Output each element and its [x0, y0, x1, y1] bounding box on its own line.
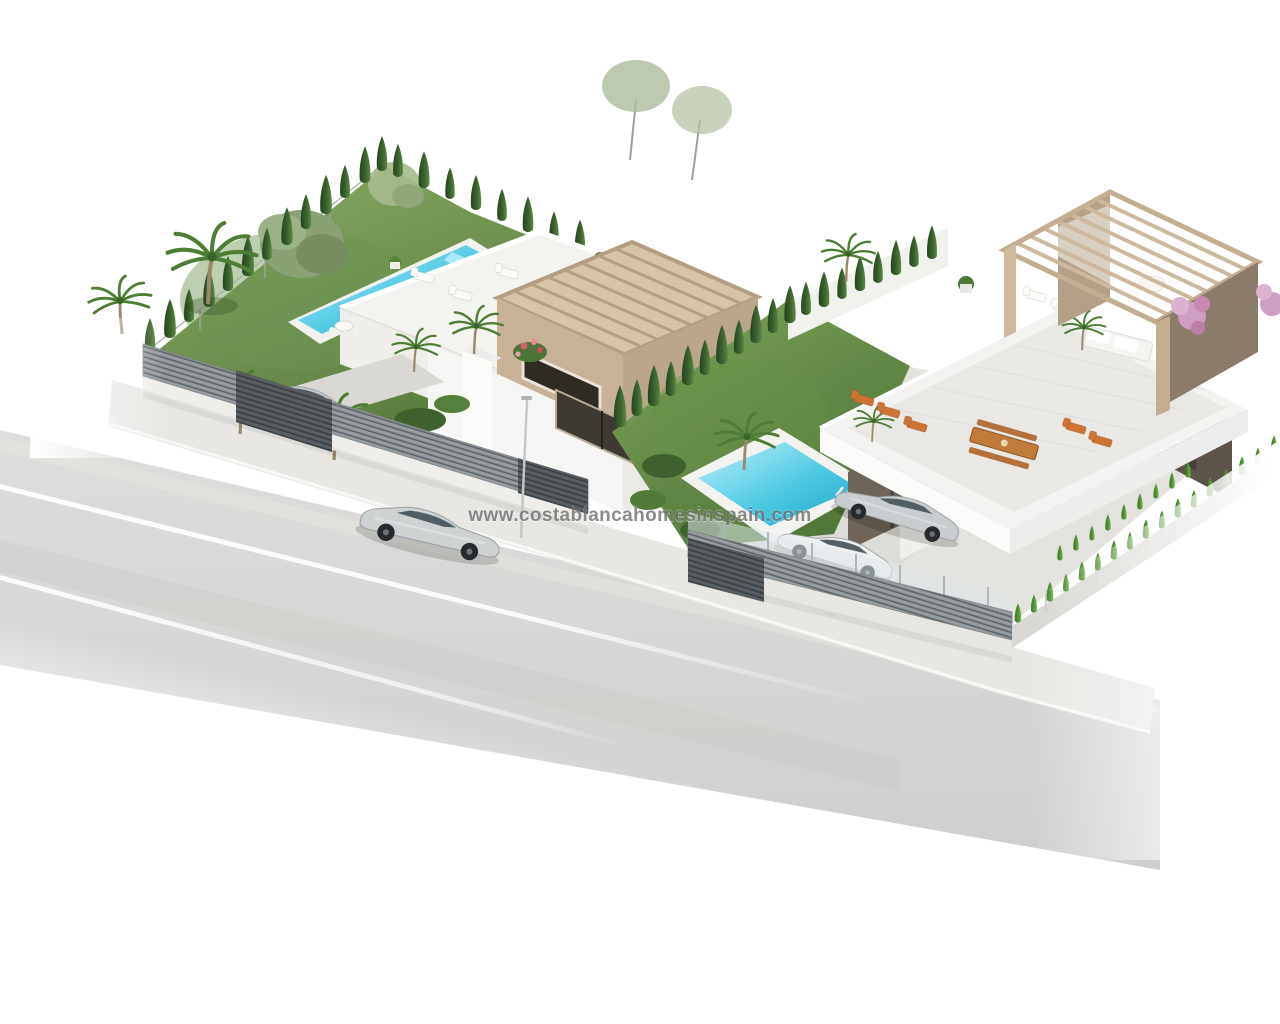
background-trees — [602, 60, 732, 180]
render-canvas: www.costablancahomesinspain.com — [0, 0, 1280, 1024]
watermark-url-text: www.costablancahomesinspain.com — [468, 505, 811, 527]
